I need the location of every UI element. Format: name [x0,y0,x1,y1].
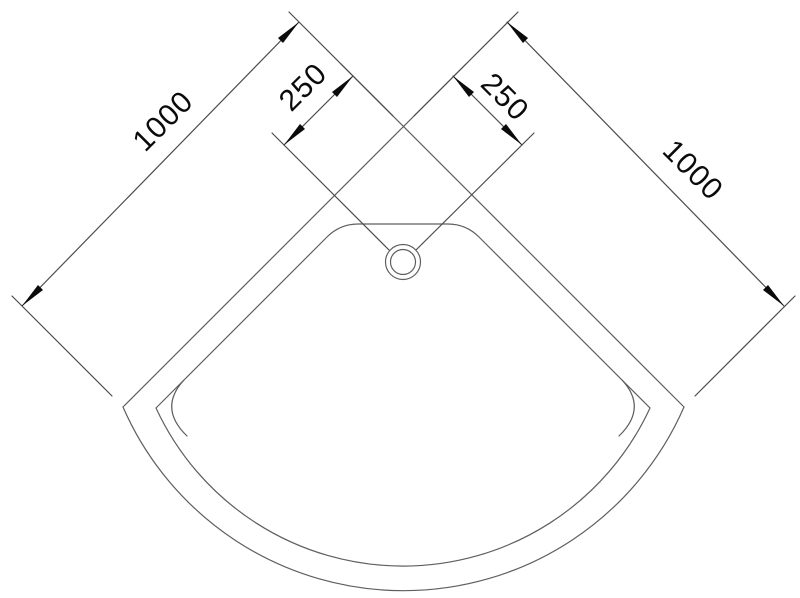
drain-circle-inner [391,250,416,275]
dim-label-right-250: 250 [474,67,535,128]
arrowhead-right-250-top [453,76,474,97]
basin-corner-fillet-left [172,380,187,436]
drawing-page: 1000 250 250 1000 [0,0,800,598]
extension-line-left-corner [12,296,112,396]
tray-rim-inner-edge [156,224,650,566]
dim-label-right-1000: 1000 [656,134,729,207]
shower-tray-technical-drawing: 1000 250 250 1000 [0,0,800,598]
arrowhead-right-1000-top [507,22,528,43]
dim-label-left-250: 250 [273,57,334,118]
tray-front-arc-outer [123,407,684,591]
extension-line-drain-left [272,133,389,250]
dimension-line-right-1000 [507,22,784,306]
arrowhead-left-1000-bottom [22,285,43,306]
tray-outline-group [123,64,684,591]
basin-corner-fillet-right [619,380,634,436]
extension-line-right-corner [695,296,795,396]
arrowhead-left-250-bottom [284,124,305,145]
extension-line-drain-right [416,133,534,250]
dimension-line-left-1000 [22,22,299,306]
arrowhead-left-1000-top [278,22,299,43]
dimension-labels-group: 1000 250 250 1000 [127,57,730,207]
dim-label-left-1000: 1000 [127,85,200,158]
arrowhead-left-250-top [332,76,353,97]
arrowhead-right-1000-bottom [763,285,784,306]
dimension-lines-group [12,12,795,396]
